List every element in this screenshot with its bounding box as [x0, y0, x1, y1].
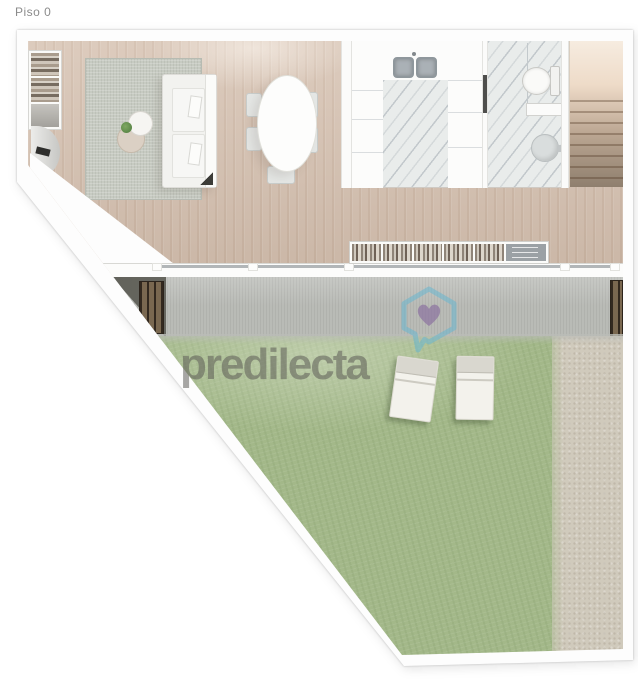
- sideboard-books: [383, 244, 412, 261]
- sliding-glass-door-line: [152, 265, 618, 268]
- staircase: [569, 41, 623, 187]
- sideboard-books: [475, 244, 504, 261]
- kitchen-sink-basin: [416, 57, 437, 78]
- door-jamb: [152, 263, 162, 271]
- lounger-headrest: [457, 357, 493, 374]
- toilet-bowl: [522, 67, 551, 95]
- sideboard-books: [352, 244, 381, 261]
- lounger-fold-line: [395, 378, 435, 386]
- potted-plant: [121, 122, 132, 133]
- door-jamb: [610, 263, 620, 271]
- sofa: [162, 74, 217, 188]
- wood-slat-bench-right: [610, 280, 623, 338]
- sideboard-shelf: [349, 241, 549, 264]
- lounger-fold-line: [457, 379, 493, 382]
- sideboard-panel: [506, 244, 546, 261]
- sofa-throw-blanket: [199, 171, 213, 185]
- cabinet-divider-line: [448, 112, 482, 113]
- cabinet-divider-line: [448, 147, 482, 148]
- coffee-table-white: [128, 111, 153, 136]
- sun-lounger: [455, 356, 494, 421]
- door-jamb: [344, 263, 354, 271]
- lounger-headrest: [396, 357, 438, 378]
- cabinet-divider-line: [448, 80, 482, 81]
- bookshelf-books: [31, 78, 59, 101]
- kitchen-faucet: [412, 52, 416, 56]
- cabinet-divider-line: [352, 90, 383, 91]
- predilecta-logo-icon: [400, 286, 458, 354]
- stair-steps: [570, 91, 623, 187]
- bathroom-stairs-wall: [561, 41, 569, 188]
- bookshelf-storage-box: [31, 104, 59, 127]
- bookshelf: [28, 50, 62, 130]
- bookshelf-books: [31, 53, 59, 76]
- dining-table: [257, 75, 317, 172]
- washbasin: [531, 134, 559, 162]
- toilet-tank: [550, 66, 560, 96]
- sideboard-books: [444, 244, 473, 261]
- bathroom-divider-wall: [526, 103, 562, 116]
- kitchen-marble-floor: [383, 80, 448, 188]
- floor-plan-canvas: Piso 0: [0, 0, 638, 683]
- kitchen-cabinets-left: [352, 41, 383, 188]
- kitchen-sink-basin: [393, 57, 414, 78]
- kitchen-left-wall: [341, 41, 352, 188]
- door-jamb: [560, 263, 570, 271]
- sun-lounger: [389, 355, 439, 422]
- cabinet-divider-line: [352, 119, 383, 120]
- door-jamb: [248, 263, 258, 271]
- gravel-strip: [552, 336, 623, 652]
- watermark-text: predilecta: [180, 343, 368, 387]
- sideboard-books: [414, 244, 443, 261]
- kitchen-cabinets-right: [448, 41, 482, 188]
- cabinet-divider-line: [352, 152, 383, 153]
- bathroom-door: [483, 75, 487, 113]
